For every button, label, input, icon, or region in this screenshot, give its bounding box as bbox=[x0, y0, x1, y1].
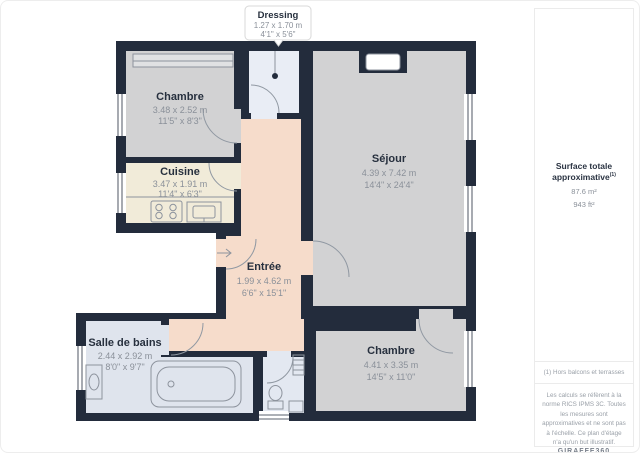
room-dim-ft-cuisine: 11'4" x 6'3" bbox=[158, 189, 202, 199]
footnote: (1) Hors balcons et terrasses bbox=[535, 361, 633, 384]
room-dim-m-cuisine: 3.47 x 1.91 m bbox=[153, 179, 208, 189]
closet-recess bbox=[316, 319, 416, 331]
wardrobe-icon bbox=[133, 54, 233, 67]
room-label-sejour: Séjour bbox=[372, 153, 407, 165]
room-dim-m-chambre-1: 3.48 x 2.52 m bbox=[153, 105, 208, 115]
window-chambre-2 bbox=[464, 331, 476, 387]
door-gap-dressing bbox=[251, 113, 277, 119]
room-dim-m-chambre-2: 4.41 x 3.35 m bbox=[364, 360, 419, 370]
door-gap-cuisine bbox=[234, 163, 241, 189]
room-dim-ft-entree: 6'6" x 15'1" bbox=[242, 288, 286, 298]
window-bottom bbox=[259, 411, 289, 423]
window-chambre-1 bbox=[114, 94, 126, 136]
door-gap-chambre-1 bbox=[234, 109, 241, 143]
giraffe360-logo: GIRAFFE360 bbox=[542, 448, 626, 453]
disclaimer-text: Les calculs se réfèrent à la norme RICS … bbox=[542, 391, 626, 448]
window-sejour-1 bbox=[464, 94, 476, 140]
surface-summary: Surface totale approximative(1) 87.6 m² … bbox=[535, 9, 633, 361]
surface-title: Surface totale approximative(1) bbox=[540, 161, 628, 183]
callout-title: Dressing bbox=[258, 10, 299, 21]
surface-title-text: Surface totale approximative bbox=[552, 161, 612, 182]
surface-title-sup: (1) bbox=[610, 172, 616, 178]
room-label-chambre-1: Chambre bbox=[156, 91, 204, 103]
window-bain bbox=[74, 346, 86, 390]
room-dim-m-sejour: 4.39 x 7.42 m bbox=[362, 168, 417, 178]
fireplace-niche-icon bbox=[359, 51, 407, 73]
room-entree-floor-upper bbox=[241, 119, 301, 236]
room-dim-ft-chambre-1: 11'5" x 8'3" bbox=[158, 116, 202, 126]
callout-dim-ft: 4'1" x 5'6" bbox=[261, 30, 296, 39]
room-label-cuisine: Cuisine bbox=[160, 166, 200, 178]
room-dim-ft-sejour: 14'4" x 24'4" bbox=[364, 180, 413, 190]
room-dressing-floor bbox=[249, 51, 299, 113]
surface-value-ft2: 943 ft² bbox=[573, 200, 594, 209]
window-cuisine bbox=[114, 173, 126, 213]
room-dim-m-bain: 2.44 x 2.92 m bbox=[98, 351, 153, 361]
room-dim-ft-bain: 8'0" x 9'7" bbox=[105, 362, 144, 372]
room-label-entree: Entrée bbox=[247, 261, 281, 273]
door-gap-chambre-2 bbox=[419, 309, 453, 319]
door-gap-bain bbox=[161, 325, 169, 355]
dressing-callout: Dressing 1.27 x 1.70 m 4'1" x 5'6" bbox=[245, 6, 311, 46]
room-dim-m-entree: 1.99 x 4.62 m bbox=[237, 276, 292, 286]
room-dim-ft-chambre-2: 14'5" x 11'0" bbox=[367, 372, 416, 382]
room-entree-floor-hall bbox=[169, 319, 304, 351]
room-sejour-floor bbox=[313, 51, 466, 306]
surface-value-m2: 87.6 m² bbox=[571, 187, 596, 196]
floorplan-page: Chambre 3.48 x 2.52 m 11'5" x 8'3" Cuisi… bbox=[0, 0, 640, 453]
room-label-bain: Salle de bains bbox=[88, 337, 161, 349]
floorplan-drawing: Chambre 3.48 x 2.52 m 11'5" x 8'3" Cuisi… bbox=[1, 1, 534, 453]
window-sejour-2 bbox=[464, 186, 476, 232]
door-gap-wc bbox=[267, 351, 291, 357]
callout-dim-m: 1.27 x 1.70 m bbox=[254, 21, 303, 30]
info-panel: Surface totale approximative(1) 87.6 m² … bbox=[534, 8, 634, 447]
disclaimer-section: Les calculs se réfèrent à la norme RICS … bbox=[535, 384, 633, 446]
door-gap-sejour bbox=[301, 241, 313, 275]
room-label-chambre-2: Chambre bbox=[367, 345, 415, 357]
